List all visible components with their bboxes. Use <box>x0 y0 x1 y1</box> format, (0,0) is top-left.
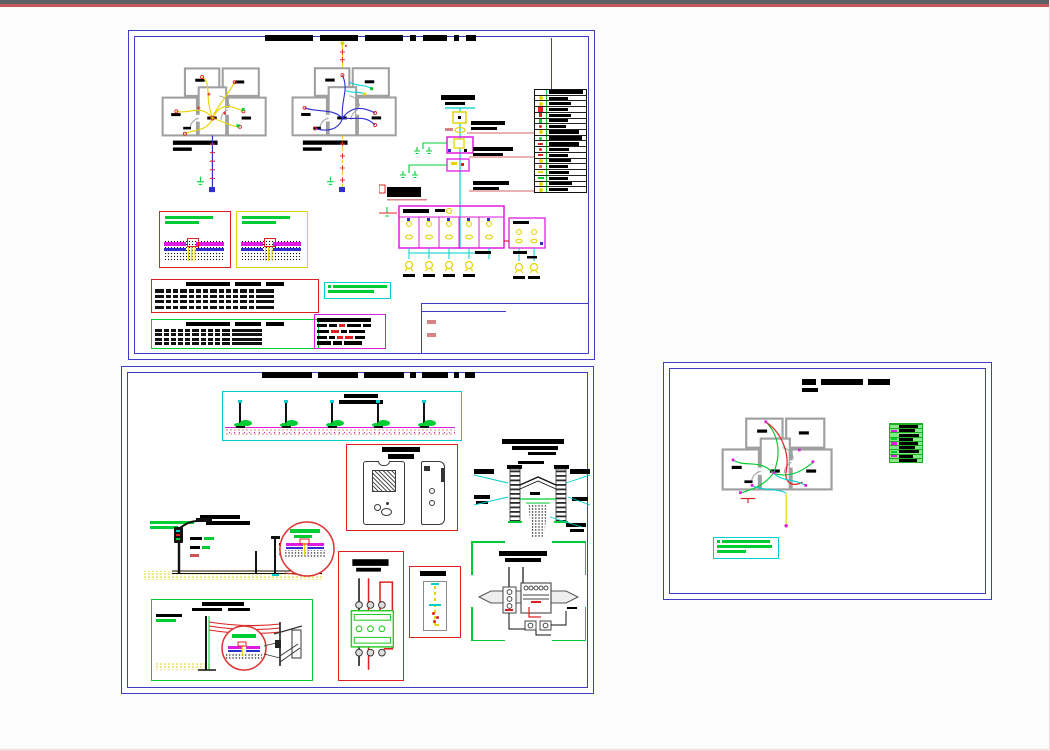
lamp-label-bar <box>463 274 475 277</box>
greeked-text-bar <box>465 372 475 378</box>
street-light-poles <box>223 392 461 440</box>
pole-base <box>282 426 291 428</box>
schedule-cell-bar <box>232 342 262 345</box>
cad-preview-page: { "chrome": { "canvas_bg": "#fcfcfd", "t… <box>0 0 1050 751</box>
greeked-text-bar <box>235 282 261 286</box>
legend-label-bar <box>549 182 572 185</box>
schedule-cell-bar <box>178 333 183 336</box>
schedule-cell-bar <box>180 306 187 309</box>
schedule-cell-bar <box>155 289 164 293</box>
schedule-cell-bar <box>215 342 220 345</box>
note-text-bar <box>165 216 213 219</box>
sheet-1-titleblock-divider <box>551 38 552 94</box>
schedule-cell-bar <box>215 329 220 333</box>
schedule-cell-bar <box>256 300 274 303</box>
sheet-1-electrical-installation <box>128 30 595 360</box>
schedule-cell-bar <box>196 295 201 298</box>
legend-label-bar <box>549 159 571 162</box>
legend-label-bar <box>549 148 569 151</box>
note-line <box>328 285 387 288</box>
schedule-cell-bar <box>180 300 187 303</box>
schedule-cell-bar <box>226 306 231 309</box>
schedule-cell-bar <box>232 333 262 336</box>
green-symbol-icon <box>539 119 543 123</box>
street-light-pole <box>323 403 345 431</box>
schedule-cell-bar <box>171 329 176 333</box>
schedule-cell-bar <box>171 333 176 336</box>
title-block-sheet1 <box>421 303 588 353</box>
schedule-cell-bar <box>173 306 178 309</box>
loads-table-cell-bar <box>363 324 371 328</box>
street-lighting-elevation <box>222 391 462 441</box>
loads-table-cell-bar <box>339 324 345 328</box>
greeked-text-bar <box>266 322 284 326</box>
schedule-cell-bar <box>203 306 208 309</box>
pole-luminaire-icon <box>284 400 288 403</box>
legend-label-bar <box>549 102 571 105</box>
schedule-cell-bar <box>233 306 238 309</box>
schedule-cell-bar <box>189 289 194 293</box>
greeked-text-bar <box>262 372 312 378</box>
schedule-cell-bar <box>155 333 162 336</box>
note-text-bar <box>328 290 374 293</box>
schedule-cell-bar <box>192 338 199 341</box>
schedule-cell-bar <box>222 333 230 336</box>
schedule-title <box>155 322 315 326</box>
schedule-cell-bar <box>185 338 190 341</box>
schedule-cell-bar <box>208 329 213 333</box>
schedule-cell-bar <box>232 329 262 333</box>
notes-box-sheet3 <box>713 537 779 559</box>
schedule-cell-bar <box>189 306 194 309</box>
sheet-2-street-lighting-details <box>121 366 594 694</box>
schedule-cell-bar <box>164 342 169 345</box>
loads-table-cell-bar <box>317 341 331 345</box>
lamp-symbol-icon <box>516 264 523 271</box>
greeked-text-bar <box>423 35 447 41</box>
schedule-row <box>155 342 315 347</box>
ground-rod-detail <box>409 566 461 638</box>
schedule-cell-bar <box>233 289 238 293</box>
schedule-cell-bar <box>173 295 178 298</box>
notes-box-sheet1 <box>324 282 391 299</box>
legend-label-bar <box>549 125 566 128</box>
sheet-2-title-bars <box>262 371 475 378</box>
schedule-cell-bar <box>226 300 231 303</box>
schedule-cell-bar <box>171 338 176 341</box>
loads-table-cell-bar <box>345 336 353 340</box>
symbols-legend-table <box>534 89 587 193</box>
loads-table-cell-bar <box>331 330 339 334</box>
note-bullet <box>328 285 331 288</box>
schedule-cell-bar <box>233 295 238 298</box>
circuit-legend-green <box>889 423 923 463</box>
loads-table-magenta <box>314 314 386 349</box>
greeked-text-bar <box>821 379 863 385</box>
legend-label-bar <box>549 114 571 117</box>
schedule-cell-bar <box>203 300 208 303</box>
pole-luminaire-icon <box>376 400 380 403</box>
schedule-title <box>155 282 315 286</box>
schedule-cell-bar <box>166 306 171 309</box>
note-text-bar <box>333 285 387 288</box>
pole-base <box>374 426 383 428</box>
photocell-control-detail <box>471 541 586 641</box>
loads-table-cell-bar <box>317 324 327 328</box>
lamp-label-bar <box>513 276 525 279</box>
ground-rod-pit <box>423 581 447 631</box>
lamp-symbol-icon <box>406 262 413 269</box>
schedule-cell-bar <box>256 289 274 293</box>
greeked-text-bar <box>454 372 459 378</box>
schedule-cell-bar <box>215 333 220 336</box>
pole-luminaire-icon <box>330 400 334 403</box>
contactor-wiring-detail <box>338 551 404 681</box>
note-line <box>328 290 387 293</box>
schedule-cell-bar <box>226 289 231 293</box>
greeked-text-bar <box>382 447 420 452</box>
loads-table-cell-bar <box>329 324 337 328</box>
greeked-text-bar <box>186 322 230 326</box>
schedule-cell-bar <box>155 329 162 333</box>
schedule-cell-bar <box>222 338 230 341</box>
legend-label-bar <box>549 188 568 191</box>
greeked-text-bar <box>868 379 890 385</box>
schedule-cell-bar <box>164 338 169 341</box>
pole-base <box>420 426 429 428</box>
greeked-text-bar <box>802 388 818 392</box>
none-symbol-icon <box>891 459 897 461</box>
schedule-cell-bar <box>240 300 247 303</box>
schedule-cell-bar <box>178 342 183 345</box>
schedule-cell-bar <box>189 295 194 298</box>
pole-base <box>328 426 337 428</box>
sheet-3-title-bars <box>802 378 890 385</box>
loads-table-cell-bar <box>317 336 327 340</box>
greeked-text-bar <box>364 372 404 378</box>
note-line <box>717 550 775 553</box>
red-symbol-icon <box>539 113 543 117</box>
loads-table-cell-bar <box>344 341 362 345</box>
schedule-cell-bar <box>232 338 262 341</box>
legend-label-bar <box>549 171 569 174</box>
schedule-cell-bar <box>196 289 201 293</box>
schedule-cell-bar <box>210 300 217 303</box>
schedule-cell-bar <box>249 295 254 298</box>
wall-mount-cable-detail <box>151 599 313 681</box>
schedule-cell-bar <box>203 289 208 293</box>
loads-table-cell-bar <box>341 330 347 334</box>
legend-label-bar <box>549 165 568 168</box>
red-symbol-icon <box>539 148 542 151</box>
trench-detail-yellow-caption <box>239 214 301 226</box>
greeked-text-bar <box>186 282 230 286</box>
greeked-text-bar <box>318 372 358 378</box>
note-line <box>165 221 221 224</box>
schedule-cell-bar <box>173 300 178 303</box>
schedule-cell-bar <box>208 342 213 345</box>
schedule-cell-bar <box>226 295 231 298</box>
schedule-cell-bar <box>166 295 171 298</box>
green-symbol-icon <box>538 177 544 179</box>
note-line <box>242 221 298 224</box>
schedule-cell-bar <box>215 338 220 341</box>
street-light-pole <box>231 403 253 431</box>
loads-table-cell-bar <box>317 318 371 322</box>
greeked-text-bar <box>266 282 284 286</box>
schedule-cell-bar <box>203 295 208 298</box>
schedule-cell-bar <box>208 333 213 336</box>
schedule-cell-bar <box>249 289 254 293</box>
greeked-text-bar <box>235 322 261 326</box>
legend-label-bar <box>549 108 568 111</box>
sheet-3-title-sub <box>802 387 818 392</box>
note-text-bar <box>242 216 290 219</box>
loads-table-cell-bar <box>317 330 329 334</box>
loads-table-cell-bar <box>349 330 365 334</box>
schedule-cell-bar <box>192 329 199 333</box>
circuit-schedule-red <box>151 279 319 313</box>
street-light-pole <box>369 403 391 431</box>
riser-and-panelboard-diagram <box>379 91 549 291</box>
legend-row <box>890 458 922 462</box>
schedule-cell-bar <box>219 295 224 298</box>
loads-table-cell-bar <box>337 336 343 340</box>
legend-label-bar <box>899 459 917 462</box>
lamp-symbol-icon <box>446 262 453 269</box>
lamp-symbol-icon <box>466 262 473 269</box>
schedule-cell-bar <box>201 342 206 345</box>
note-text-bar <box>717 545 772 548</box>
schedule-cell-bar <box>180 295 187 298</box>
lamp-symbol-icon <box>426 262 433 269</box>
sheet-3-telephone-plan <box>663 362 992 600</box>
legend-label-bar <box>549 97 568 100</box>
top-bar-red <box>0 4 1050 7</box>
schedule-cell-bar <box>166 289 171 293</box>
schedule-cell-bar <box>201 333 206 336</box>
schedule-cell-bar <box>178 338 183 341</box>
schedule-cell-bar <box>256 295 274 298</box>
greeked-text-bar <box>802 379 816 385</box>
pole-base <box>236 426 245 428</box>
green-symbol-icon <box>539 137 542 140</box>
lamp-label-bar <box>443 274 455 277</box>
schedule-cell-bar <box>155 300 164 303</box>
schedule-cell-bar <box>173 289 178 293</box>
loads-table-cell-bar <box>329 336 335 340</box>
schedule-cell-bar <box>185 342 190 345</box>
legend-label-bar <box>549 177 568 180</box>
circuit-schedule-green <box>151 319 319 349</box>
schedule-cell-bar <box>233 300 238 303</box>
street-light-pole <box>415 403 437 431</box>
schedule-cell-bar <box>249 306 254 309</box>
greeked-text-bar <box>466 35 476 41</box>
note-text-bar <box>242 221 276 224</box>
lamp-label-bar <box>528 276 540 279</box>
lamp-label-bar <box>423 274 435 277</box>
red-symbol-icon <box>538 154 543 156</box>
schedule-cell-bar <box>196 306 201 309</box>
note-bullet <box>717 540 720 543</box>
legend-label-bar <box>549 154 568 157</box>
schedule-cell-bar <box>171 342 176 345</box>
schedule-cell-bar <box>155 338 162 341</box>
schedule-cell-bar <box>219 306 224 309</box>
schedule-cell-bar <box>222 342 230 345</box>
loads-table-cell-bar <box>347 324 361 328</box>
greeked-text-bar <box>410 372 416 378</box>
schedule-cell-bar <box>240 295 247 298</box>
greeked-text-bar <box>422 372 448 378</box>
schedule-cell-bar <box>208 338 213 341</box>
trench-detail-yellow <box>236 211 308 268</box>
schedule-cell-bar <box>185 333 190 336</box>
schedule-cell-bar <box>219 289 224 293</box>
schedule-cell-bar <box>249 300 254 303</box>
note-line <box>717 545 775 548</box>
schedule-cell-bar <box>210 306 217 309</box>
yellow-symbol-icon <box>539 188 543 192</box>
lamp-symbol-icon <box>531 264 538 271</box>
schedule-cell-bar <box>155 295 164 298</box>
trench-detail-red-caption <box>162 214 224 226</box>
note-line <box>242 216 298 219</box>
loads-table-cell-bar <box>355 336 365 340</box>
schedule-cell-bar <box>201 329 206 333</box>
red-symbol-icon <box>538 143 543 145</box>
legend-row <box>535 186 586 192</box>
schedule-cell-bar <box>196 300 201 303</box>
manhole-section-detail <box>474 439 590 539</box>
schedule-cell-bar <box>155 342 162 345</box>
note-line <box>717 540 775 543</box>
greeked-text-bar <box>454 35 459 41</box>
schedule-cell-bar <box>155 306 164 309</box>
schedule-cell-bar <box>166 300 171 303</box>
schedule-row <box>155 305 315 311</box>
schedule-cell-bar <box>219 300 224 303</box>
greeked-text-bar <box>388 454 414 459</box>
schedule-cell-bar <box>240 289 247 293</box>
note-text-bar <box>722 540 770 543</box>
schedule-cell-bar <box>178 329 183 333</box>
schedule-cell-bar <box>180 289 187 293</box>
schedule-cell-bar <box>164 333 169 336</box>
greeked-text-bar <box>410 35 416 41</box>
schedule-cell-bar <box>185 329 190 333</box>
pole-luminaire-icon <box>238 400 242 403</box>
schedule-cell-bar <box>201 338 206 341</box>
floor-plan-a-lighting <box>159 65 271 211</box>
floor-plan-c-communications <box>719 415 837 533</box>
schedule-cell-bar <box>210 289 217 293</box>
loads-table-row <box>317 340 383 346</box>
note-line <box>165 216 221 219</box>
note-text-bar <box>165 221 199 224</box>
schedule-cell-bar <box>192 342 199 345</box>
schedule-cell-bar <box>240 306 247 309</box>
legend-label-bar <box>549 119 568 122</box>
lamp-label-bar <box>403 274 415 277</box>
yellow-symbol-icon <box>538 171 543 173</box>
schedule-cell-bar <box>189 300 194 303</box>
schedule-cell-bar <box>256 306 274 309</box>
trench-detail-red <box>159 211 231 268</box>
pole-luminaire-icon <box>422 400 426 403</box>
red-symbol-icon <box>539 125 542 128</box>
orange-symbol-icon <box>539 165 543 169</box>
meter-cabinet-caption <box>379 447 423 459</box>
note-text-bar <box>717 550 746 553</box>
schedule-cell-bar <box>210 295 217 298</box>
schedule-cell-bar <box>164 329 169 333</box>
schedule-cell-bar <box>222 329 230 333</box>
loads-table-cell-bar <box>333 341 342 345</box>
street-light-pole <box>277 403 299 431</box>
schedule-cell-bar <box>192 333 199 336</box>
